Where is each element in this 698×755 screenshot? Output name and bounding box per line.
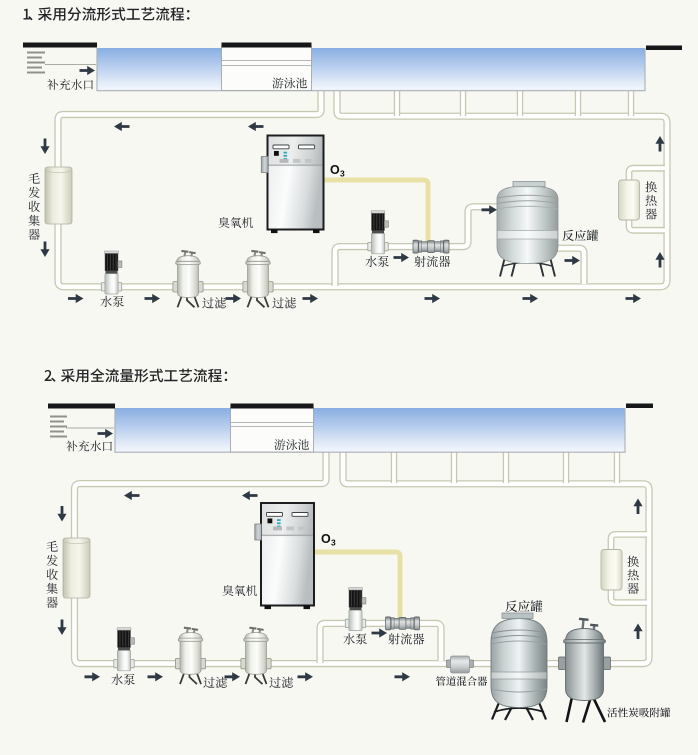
- svg-text:O: O: [321, 532, 331, 546]
- svg-text:3: 3: [331, 538, 336, 548]
- svg-text:3: 3: [340, 169, 345, 179]
- svg-text:O: O: [330, 163, 340, 177]
